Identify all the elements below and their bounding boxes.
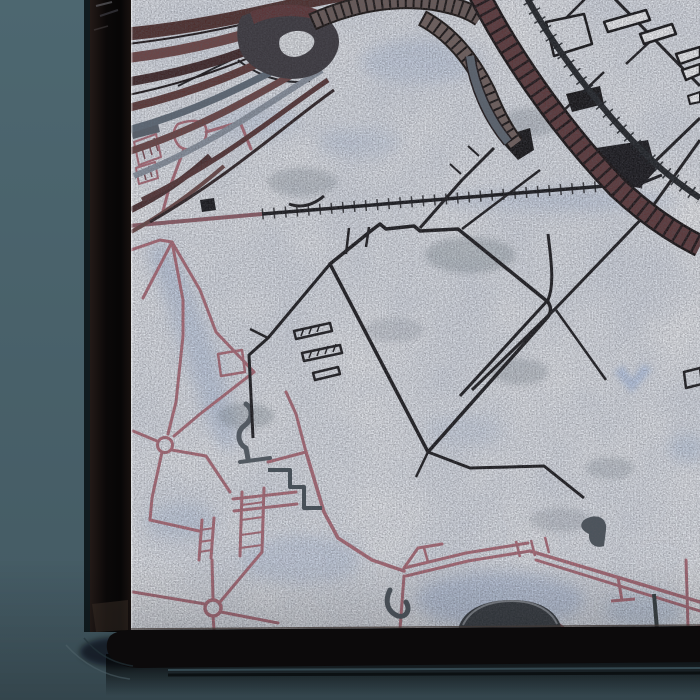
canvas-print-photo <box>0 0 700 700</box>
page-background <box>0 0 700 700</box>
vignette <box>0 0 700 700</box>
